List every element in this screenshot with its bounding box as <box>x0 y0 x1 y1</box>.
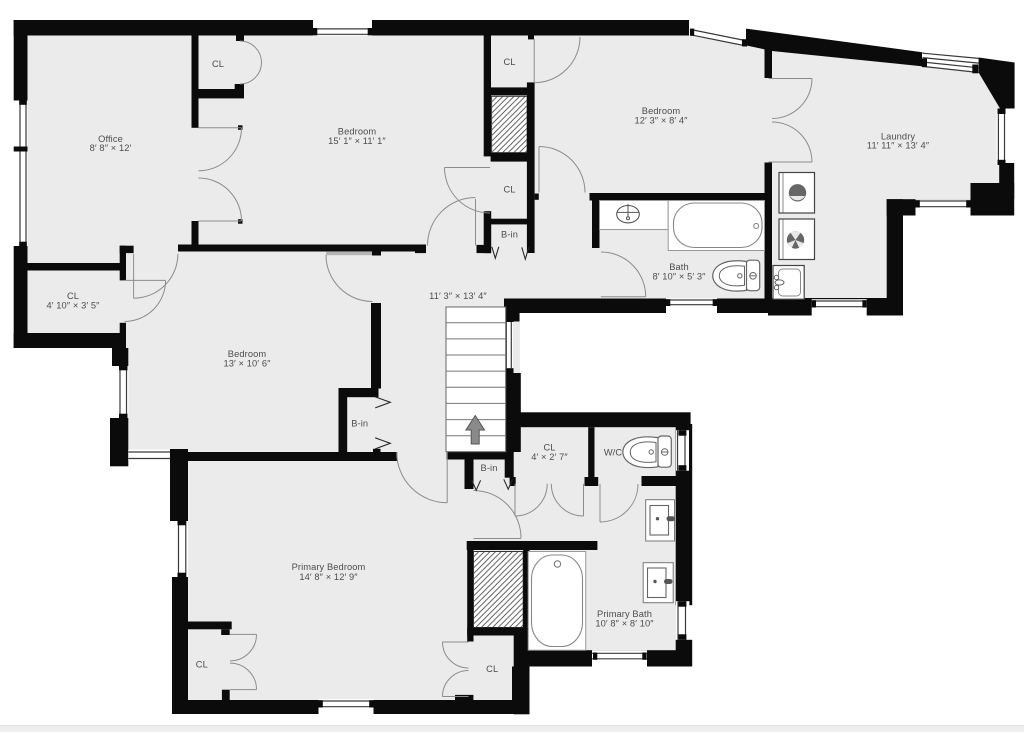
svg-text:CL: CL <box>196 660 208 670</box>
svg-text:11′ 11″ × 13′ 4″: 11′ 11″ × 13′ 4″ <box>867 141 930 151</box>
svg-text:Bedroom: Bedroom <box>338 127 377 137</box>
svg-text:11′ 3″ × 13′ 4″: 11′ 3″ × 13′ 4″ <box>429 291 487 301</box>
svg-text:Bedroom: Bedroom <box>228 349 267 359</box>
svg-text:CL: CL <box>212 59 224 69</box>
svg-text:B-in: B-in <box>351 419 368 429</box>
svg-text:8′ 10″ × 5′ 3″: 8′ 10″ × 5′ 3″ <box>652 272 706 282</box>
svg-text:W/C: W/C <box>604 448 623 458</box>
svg-text:4′ × 2′ 7″: 4′ × 2′ 7″ <box>531 452 568 462</box>
svg-text:CL: CL <box>67 291 79 301</box>
svg-text:B-in: B-in <box>481 463 498 473</box>
svg-text:CL: CL <box>503 185 515 195</box>
svg-text:Bath: Bath <box>669 262 689 272</box>
svg-text:Primary Bath: Primary Bath <box>597 609 652 619</box>
svg-text:4′ 10″ × 3′ 5″: 4′ 10″ × 3′ 5″ <box>46 301 100 311</box>
svg-text:CL: CL <box>486 664 498 674</box>
svg-text:13′ × 10′ 6″: 13′ × 10′ 6″ <box>223 359 271 369</box>
svg-text:8′ 8″ × 12′: 8′ 8″ × 12′ <box>90 143 132 153</box>
svg-text:B-in: B-in <box>501 230 518 240</box>
svg-text:CL: CL <box>503 57 515 67</box>
svg-text:CL: CL <box>543 443 555 453</box>
svg-text:Primary Bedroom: Primary Bedroom <box>292 562 366 572</box>
svg-text:12′ 3″ × 8′ 4″: 12′ 3″ × 8′ 4″ <box>634 116 688 126</box>
svg-text:14′ 8″ × 12′ 9″: 14′ 8″ × 12′ 9″ <box>299 572 358 582</box>
svg-text:10′ 8″ × 8′ 10″: 10′ 8″ × 8′ 10″ <box>595 619 654 629</box>
svg-text:Bedroom: Bedroom <box>642 106 681 116</box>
svg-text:15′ 1″ × 11′ 1″: 15′ 1″ × 11′ 1″ <box>328 136 386 146</box>
